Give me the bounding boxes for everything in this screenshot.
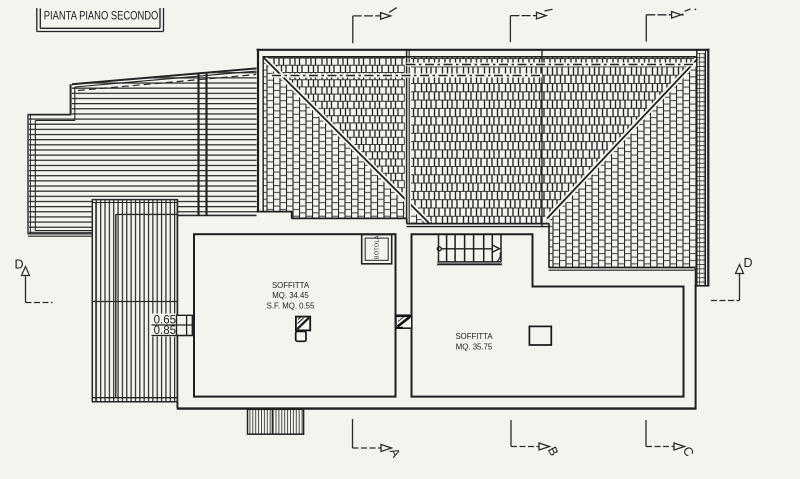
- svg-text:PIANTA PIANO SECONDO: PIANTA PIANO SECONDO: [44, 8, 159, 22]
- svg-text:SOFFITTA: SOFFITTA: [272, 281, 310, 290]
- svg-text:SOFFITTA: SOFFITTA: [455, 332, 493, 341]
- svg-text:0.85: 0.85: [154, 325, 176, 337]
- svg-text:D: D: [744, 256, 753, 270]
- svg-text:MQ. 34.45: MQ. 34.45: [272, 291, 309, 300]
- svg-text:S.F. MQ. 0.55: S.F. MQ. 0.55: [267, 301, 315, 310]
- svg-text:MQ. 35.75: MQ. 35.75: [456, 343, 493, 352]
- svg-text:D: D: [15, 258, 24, 272]
- svg-text:BOTOLA: BOTOLA: [375, 235, 381, 259]
